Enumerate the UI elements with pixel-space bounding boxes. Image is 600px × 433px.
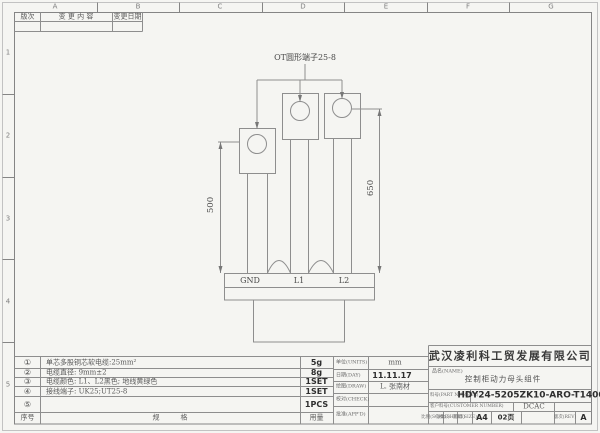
bom-footer-spec: 规 格: [153, 415, 188, 422]
dimension-500-label: 500: [207, 197, 216, 213]
cable-assembly-drawing: [218, 64, 382, 342]
bom-footer-qty: 用量: [310, 415, 324, 422]
col-label-a: A: [53, 4, 58, 11]
draw-value: L. 张南材: [380, 384, 410, 391]
col-label-e: E: [384, 4, 388, 11]
bom-row-qty: 1SET: [305, 388, 327, 396]
date-label: 日期(DAY): [336, 373, 361, 378]
connector-label-l1: L1: [294, 277, 304, 285]
units-value: mm: [388, 359, 401, 366]
strain-relief-arc: [268, 261, 291, 274]
col-label-f: F: [466, 4, 470, 11]
customer-number-label: 客户料号(CUSTOMER NUMBER): [430, 405, 504, 410]
col-label-b: B: [136, 4, 141, 11]
bom-row-no: ②: [24, 369, 31, 377]
bom-row-spec: 电缆直径: 9mm±2: [46, 370, 107, 377]
units-label: 单位(UNITS): [336, 360, 367, 365]
change-content-header: 变 更 内 容: [59, 14, 94, 21]
revision-col-header: 版次: [21, 14, 35, 21]
rev-label: 版次(REV): [554, 416, 576, 421]
col-label-c: C: [218, 4, 223, 11]
part-number-value: HDY24-5205ZK10-ARO-T1400: [457, 392, 600, 401]
row-label-5: 5: [6, 382, 10, 389]
approve-label: 批准(APP'D): [336, 413, 366, 418]
row-label-2: 2: [6, 133, 10, 140]
bom-row-qty: 5g: [311, 359, 322, 367]
bom-row-no: ④: [24, 388, 31, 396]
terminal-gnd: [240, 129, 276, 174]
terminal-annotation: OT圆形端子25-8: [274, 54, 336, 62]
row-label-1: 1: [6, 50, 10, 57]
cable-l2: [334, 139, 352, 274]
terminal-l1: [283, 94, 319, 140]
connector-label-l2: L2: [339, 277, 349, 285]
change-date-header: 变更日期: [114, 14, 142, 21]
draw-label: 绘图(DRAW): [336, 385, 366, 390]
connector-label-gnd: GND: [240, 277, 260, 285]
size-label: 图幅(SIZE): [453, 416, 477, 421]
bom-row-spec: 接线端子: UK25;UT25-8: [46, 388, 127, 395]
date-value: 11.11.17: [372, 372, 411, 380]
dimension-500: [218, 142, 240, 273]
check-label: 校对(CHECK): [336, 397, 369, 402]
row-label-3: 3: [6, 216, 10, 223]
part-name-label: 品名(NAME): [432, 370, 463, 375]
bom-row-spec: 单芯多股铜芯软电缆:25mm²: [46, 359, 136, 366]
terminal-l2: [325, 94, 361, 139]
bom-row-no: ①: [24, 359, 31, 367]
bom-row-qty: 1SET: [305, 378, 327, 386]
bom-row-qty: 8g: [311, 369, 322, 377]
pages-value: 02页: [498, 415, 515, 422]
cable-gnd: [248, 174, 268, 274]
bom-row-no: ⑤: [24, 401, 31, 409]
drawing-sheet: A B C D E F G 1 2 3 4 5 版次 变 更 内 容 变更日期 …: [0, 0, 600, 433]
size-value: A4: [476, 414, 488, 422]
col-label-d: D: [300, 4, 305, 11]
bom-footer-no: 序号: [21, 415, 35, 422]
row-label-4: 4: [6, 299, 10, 306]
bom-row-spec: 电缆颜色: L1、L2黑色; 地线黄绿色: [46, 379, 157, 386]
part-name-value: 控制柜动力母头组件: [465, 375, 542, 383]
strain-relief-arc: [309, 261, 334, 274]
bom-row-qty: 1PCS: [305, 401, 328, 409]
company-name: 武汉凌利科工贸发展有限公司: [429, 351, 592, 362]
cable-l1: [291, 140, 309, 274]
annotation-leader: [255, 64, 344, 129]
bom-row-no: ③: [24, 378, 31, 386]
customer-number-value: DCAC: [523, 404, 544, 411]
dimension-650-label: 650: [367, 180, 376, 196]
col-label-g: G: [548, 4, 553, 11]
rev-value: A: [580, 414, 586, 422]
